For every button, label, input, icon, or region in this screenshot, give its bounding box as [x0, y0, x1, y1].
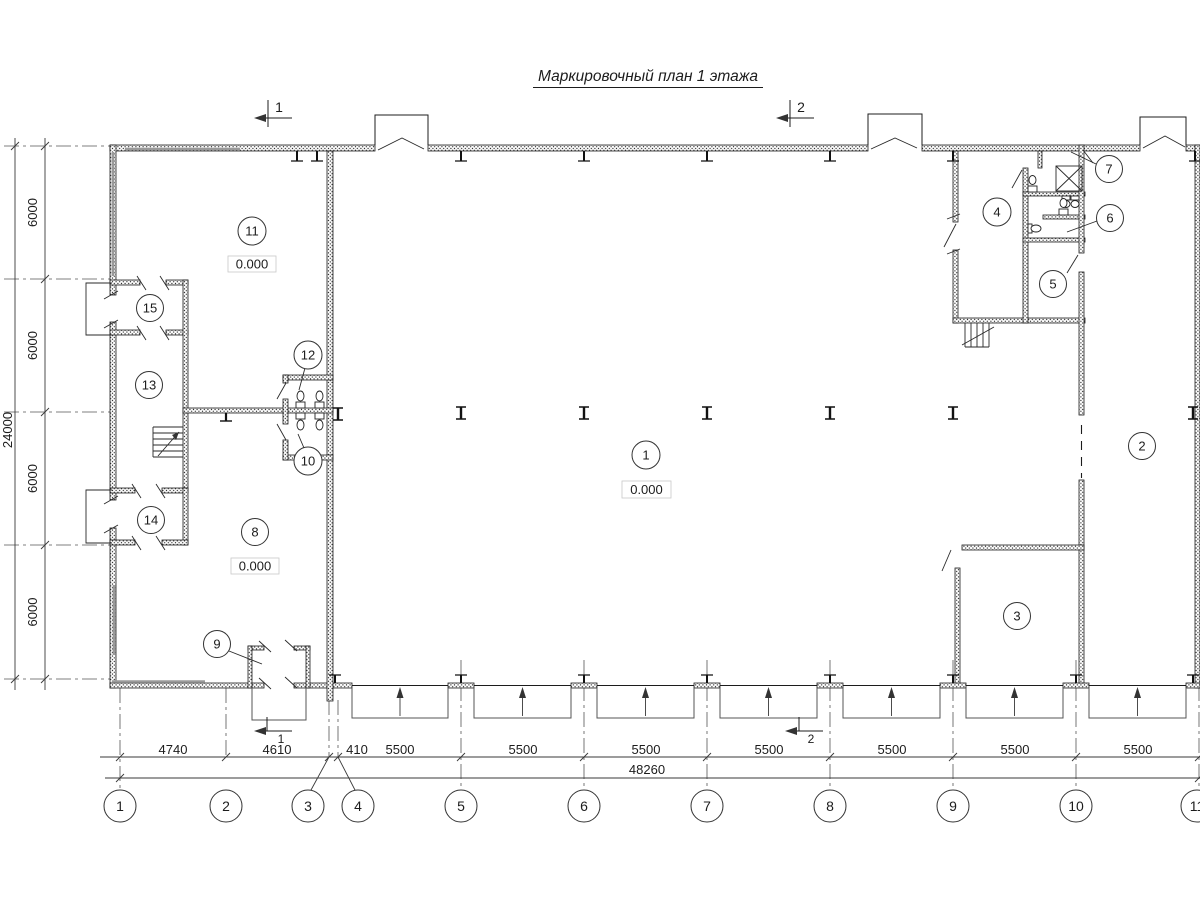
axis-bubble-7: 7 [703, 798, 711, 814]
axis-bubble-3: 3 [304, 798, 312, 814]
axis-bubble-8: 8 [826, 798, 834, 814]
room-label-2: 2 [1138, 439, 1145, 454]
dim-4740: 4740 [159, 742, 188, 757]
axis-bubble-4: 4 [354, 798, 362, 814]
room-label-8: 8 [251, 525, 258, 540]
dim-5500-3: 5500 [632, 742, 661, 757]
toilet-fixture [315, 413, 324, 430]
entry-stoops [252, 688, 1186, 720]
axis-bubble-11: 11 [1190, 798, 1200, 814]
dim-5500-5: 5500 [878, 742, 907, 757]
dim-6000-3: 6000 [25, 464, 40, 493]
room-label-13: 13 [142, 378, 156, 393]
axis-bubble-1: 1 [116, 798, 124, 814]
dim-6000-4: 6000 [25, 598, 40, 627]
bottom-dimensions: 4740 4610 410 5500 5500 5500 5500 5500 5… [100, 742, 1200, 782]
section-2-top-label: 2 [797, 99, 805, 115]
toilet-fixture [315, 391, 324, 408]
dim-5500-6: 5500 [1001, 742, 1030, 757]
dim-6000-2: 6000 [25, 331, 40, 360]
opening-break-marks [104, 214, 960, 689]
left-dimensions: 6000 6000 6000 6000 24000 [0, 138, 49, 690]
axis-bubble-10: 10 [1068, 798, 1084, 814]
elevation-room11: 0.000 [236, 257, 269, 272]
dim-5500-7: 5500 [1124, 742, 1153, 757]
room-label-11: 11 [245, 224, 259, 239]
window-bands [112, 149, 240, 682]
left-porches [86, 283, 112, 543]
elevation-room8: 0.000 [239, 559, 272, 574]
sink-fixture [1071, 196, 1079, 208]
room-label-9: 9 [213, 637, 220, 652]
stairs-room13 [153, 427, 183, 457]
drawing-sheet: 1 2 3 4 5 6 7 8 9 10 11 12 13 14 15 0.00… [0, 0, 1200, 900]
entry-arrows [397, 687, 1142, 716]
dim-total-48260: 48260 [629, 762, 665, 777]
room-label-5: 5 [1049, 277, 1056, 292]
dim-5500-2: 5500 [509, 742, 538, 757]
floor-plan-canvas: 1 2 3 4 5 6 7 8 9 10 11 12 13 14 15 0.00… [0, 0, 1200, 900]
stairs-room4 [962, 323, 994, 347]
columns-bottom-piers [329, 675, 1199, 683]
dim-total-24000: 24000 [0, 412, 15, 448]
dim-5500-1: 5500 [386, 742, 415, 757]
section-1-top-label: 1 [275, 99, 283, 115]
axis-bubble-6: 6 [580, 798, 588, 814]
room-label-6: 6 [1106, 211, 1113, 226]
axis-bubble-5: 5 [457, 798, 465, 814]
sink-fixture [1028, 224, 1041, 233]
section-marks: 1 2 1 2 [254, 99, 823, 746]
section-2-bottom-label: 2 [808, 732, 815, 746]
axis-bubble-2: 2 [222, 798, 230, 814]
dim-410: 410 [346, 742, 368, 757]
room-label-7: 7 [1105, 162, 1112, 177]
dim-6000-1: 6000 [25, 198, 40, 227]
sanitary-fixtures [296, 176, 1079, 431]
room-label-3: 3 [1013, 609, 1020, 624]
dim-4610: 4610 [263, 742, 292, 757]
room-label-10: 10 [301, 454, 315, 469]
elevation-marks: 0.000 0.000 0.000 [228, 256, 671, 574]
toilet-fixture [296, 391, 305, 408]
columns-top-wall [291, 151, 1200, 161]
door-leaves [277, 150, 1093, 571]
elevator-shaft [1056, 166, 1082, 191]
columns-mid-axis [220, 407, 1198, 421]
room-label-1: 1 [642, 448, 649, 463]
toilet-fixture [1028, 176, 1037, 193]
axis-bubble-9: 9 [949, 798, 957, 814]
dim-5500-4: 5500 [755, 742, 784, 757]
toilet-fixture [296, 413, 305, 430]
title-text: Маркировочный план 1 этажа [538, 68, 758, 85]
drawing-title: Маркировочный план 1 этажа [533, 68, 763, 88]
elevation-hall: 0.000 [630, 482, 663, 497]
room-label-12: 12 [301, 348, 315, 363]
room-label-4: 4 [993, 205, 1000, 220]
room-label-15: 15 [143, 301, 157, 316]
room-label-14: 14 [144, 513, 158, 528]
